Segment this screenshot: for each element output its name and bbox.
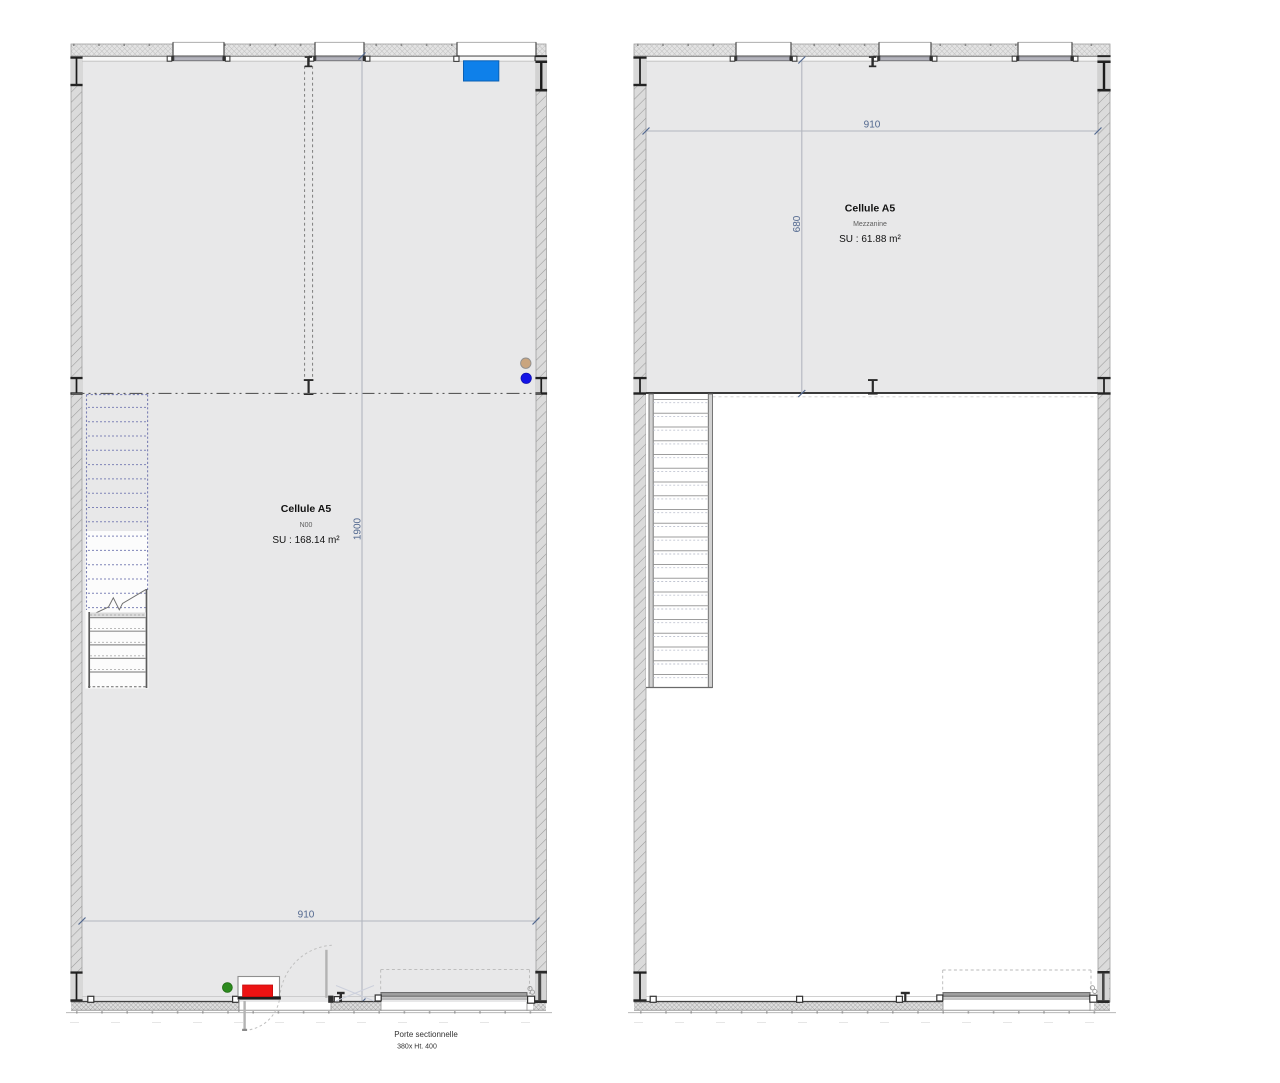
svg-text:380x Ht. 400: 380x Ht. 400	[397, 1044, 437, 1051]
svg-text:SU : 168.14 m²: SU : 168.14 m²	[272, 535, 340, 546]
svg-text:910: 910	[864, 120, 881, 131]
svg-text:910: 910	[298, 910, 315, 921]
svg-text:1900: 1900	[353, 517, 364, 540]
svg-text:Cellule A5: Cellule A5	[281, 503, 332, 515]
svg-text:SU : 61.88 m²: SU : 61.88 m²	[839, 234, 901, 245]
svg-text:N00: N00	[300, 522, 313, 529]
svg-text:680: 680	[792, 215, 803, 232]
svg-text:Cellule A5: Cellule A5	[845, 203, 896, 215]
svg-text:Porte sectionnelle: Porte sectionnelle	[394, 1030, 458, 1039]
svg-text:Mezzanine: Mezzanine	[853, 221, 887, 228]
